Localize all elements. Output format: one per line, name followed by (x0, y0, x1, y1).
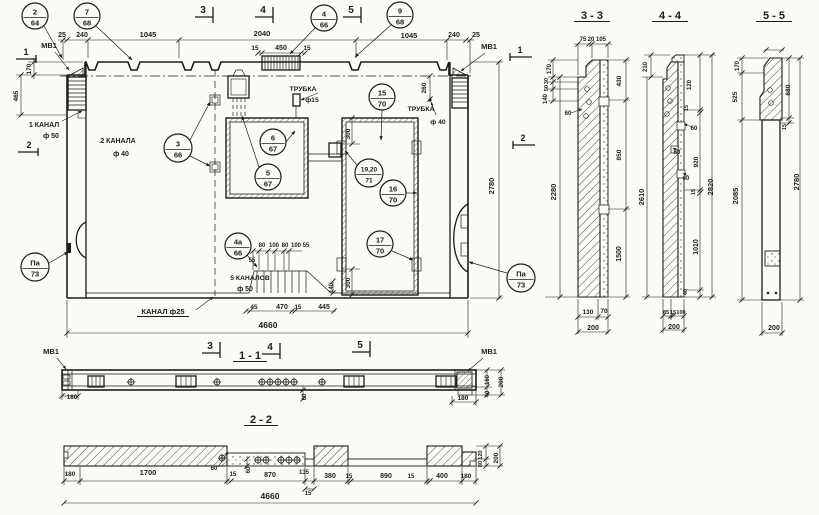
callout-sheet-number: 64 (31, 19, 40, 28)
dim-label: 30 (544, 78, 550, 84)
dim-label: 1045 (401, 31, 418, 40)
callout-position-number: 7 (85, 8, 89, 17)
dim-label: 2820 (706, 179, 715, 196)
dim-label: 105 (596, 37, 607, 43)
dim-label: 2 КАНАЛА (100, 138, 135, 145)
dim-label: 2780 (792, 174, 801, 191)
dim-label: 60 (302, 393, 308, 400)
section-4-4 (642, 52, 716, 333)
dim-label: ф 50 (237, 286, 253, 293)
dim-label: 180 (458, 395, 469, 402)
dim-label: 2040 (254, 29, 271, 38)
dim-label: 1045 (140, 30, 157, 39)
callout-sheet-number: 67 (269, 145, 277, 154)
dim-label: 15 (782, 124, 788, 130)
callout-leader (355, 25, 391, 57)
opening-2 (337, 118, 421, 295)
dim-label: 4660 (259, 320, 278, 330)
bottom-dim-4660 (64, 300, 470, 338)
dim-label: 120 (687, 79, 693, 90)
dim-label: 60 (211, 466, 218, 472)
dim-label: 200 (668, 324, 680, 331)
top-dim-line (58, 37, 474, 73)
callout-position-number: 9 (398, 7, 402, 16)
dim-label: 15 (295, 305, 302, 311)
dim-label: 400 (436, 473, 448, 480)
dim-label: 1010 (693, 239, 700, 255)
dim-label: 430 (616, 75, 623, 86)
callout-position-number: 5 (266, 169, 270, 178)
panel-shop-drawing: 264768466968366667567157019,207116701770… (0, 0, 819, 515)
callout-position-number: 16 (389, 185, 397, 194)
mb1-embed-left (70, 68, 83, 75)
callout-sheet-number: 71 (365, 178, 373, 185)
dim-label: 50 (544, 85, 550, 91)
dim-label: 5 (357, 340, 363, 351)
dim-label: МВ1 (41, 41, 57, 50)
dim-label: 80 (478, 461, 484, 467)
callout-position-number: 15 (378, 89, 386, 98)
dim-label: 15 (251, 45, 259, 52)
dim-label: КАНАЛ ф25 (141, 307, 184, 316)
dim-label: 180 (461, 473, 472, 480)
dim-label: 40 (683, 289, 689, 295)
dim-label: 920 (693, 156, 700, 167)
callout-leader (190, 102, 210, 140)
dim-label: 3 (200, 5, 206, 16)
dim-label: 15 (691, 189, 697, 195)
dim-label: 2780 (487, 178, 496, 195)
dim-label: 5 (348, 5, 354, 16)
dim-label: 1 (517, 45, 522, 55)
dim-label: 60 (674, 150, 681, 156)
dim-label: 15 (408, 474, 415, 480)
dim-label: 1 (23, 47, 28, 57)
dim-label: 75 (580, 37, 587, 43)
dim-label: ф15 (305, 97, 319, 104)
right-end-embed (452, 78, 468, 108)
dim-label: 70 (600, 308, 608, 315)
dim-label: 1 - 1 (239, 350, 261, 362)
dim-label: 25 (472, 32, 480, 39)
dim-label: 15 (670, 310, 676, 316)
dim-label: 100 (676, 310, 685, 316)
dim-label: МВ1 (481, 347, 497, 356)
dim-label: 240 (76, 32, 88, 39)
callout-position-number: 2 (33, 8, 37, 17)
callout-position-number: 17 (376, 236, 384, 245)
dim-label: ф 40 (113, 151, 129, 158)
dim-label: 200 (498, 376, 505, 387)
dim-label: 15 (305, 491, 312, 497)
dim-label: 2 (26, 140, 31, 150)
dim-label: 40 (485, 390, 491, 397)
dim-label: ф 40 (430, 119, 446, 126)
drawing-sheet: 264768466968366667567157019,207116701770… (0, 0, 819, 515)
plan-view-1-1 (57, 341, 505, 406)
dim-label: 25 (58, 32, 66, 39)
dim-label: 55 (303, 243, 310, 249)
dim-label: 200 (493, 452, 500, 463)
callout-position-number: Па (30, 259, 40, 268)
right-lifting-recess (454, 204, 468, 272)
dim-label: 130 (583, 309, 594, 316)
callout-position-number: 6 (271, 134, 275, 143)
dim-label: 4 (260, 5, 266, 16)
callout-position-number: 4а (234, 238, 243, 247)
dim-label: 180 (65, 471, 76, 478)
left-lifting-recess (76, 222, 86, 258)
dim-label: 465 (13, 90, 20, 101)
dim-label: 60 (691, 126, 698, 132)
section-5-5 (737, 47, 804, 336)
callout-sheet-number: 70 (376, 247, 384, 256)
dim-label: 450 (275, 45, 287, 52)
callout-sheet-number: 66 (234, 249, 242, 258)
dim-label: 140 (543, 93, 549, 104)
dim-label: 15 (230, 472, 237, 478)
dim-label: 15 (346, 474, 353, 480)
callout-sheet-number: 68 (396, 18, 404, 27)
callout-leader (469, 262, 507, 273)
dim-label: МВ1 (481, 42, 497, 51)
dim-label: 170 (547, 63, 553, 74)
dim-label: 160 (485, 374, 491, 385)
dim-label: 80 (259, 243, 266, 249)
callout-leader (49, 252, 68, 263)
dim-label: 890 (380, 473, 392, 480)
dim-label: 300 (345, 277, 352, 288)
dim-label: 100 (291, 243, 302, 249)
callout-position-number: 19,20 (361, 167, 378, 174)
callout-sheet-number: 70 (378, 100, 386, 109)
dim-label: 210 (643, 61, 649, 72)
callout-sheet-number: 67 (264, 180, 272, 189)
dim-label: 60 (565, 111, 572, 117)
dim-label: 240 (448, 32, 460, 39)
callout-sheet-number: 66 (320, 21, 328, 30)
dim-label: 15 (303, 45, 311, 52)
dim-label: ТРУБКА (290, 86, 317, 93)
dim-label: 2610 (637, 189, 646, 206)
dim-label: 3 (207, 341, 213, 352)
dim-label: 4 (267, 342, 273, 353)
dim-label: 5 КАНАЛОВ (230, 275, 270, 282)
plan-section-flags (202, 341, 370, 359)
dim-label: 5 - 5 (763, 10, 785, 22)
dim-label: 1500 (616, 246, 623, 262)
dim-label: 2085 (731, 188, 740, 205)
dim-label: 2280 (549, 184, 558, 201)
dim-label: 120 (478, 450, 484, 459)
callout-position-number: 3 (176, 140, 180, 149)
dim-label: 100 (269, 243, 280, 249)
dim-label: 200 (587, 325, 599, 332)
dim-label: 140 (329, 282, 335, 293)
dim-label: 470 (276, 304, 288, 311)
dim-label: 445 (318, 304, 330, 311)
dim-label: 4 - 4 (659, 10, 682, 22)
callout-position-number: Па (516, 270, 526, 279)
dim-label: 80 (282, 243, 289, 249)
dim-label: 20 (588, 37, 595, 43)
callout-sheet-number: 73 (31, 270, 39, 279)
dim-label: 525 (732, 91, 739, 102)
dim-label: 200 (768, 325, 780, 332)
dim-label: 850 (616, 149, 623, 160)
top-joint-key (262, 56, 300, 70)
dim-label: 135 (299, 470, 310, 476)
dim-label: 180 (67, 394, 78, 401)
conduit-block (228, 70, 249, 118)
callout-sheet-number: 68 (83, 19, 91, 28)
callout-sheet-number: 66 (174, 151, 182, 160)
dim-label: 2 - 2 (250, 414, 272, 426)
mb1-plan-embed (457, 372, 472, 388)
dim-label: 2 (520, 133, 525, 143)
callout-sheet-number: 70 (389, 196, 397, 205)
dim-label: 680 (785, 84, 792, 95)
dim-label: ТРУБКА (408, 106, 435, 113)
dim-label: 15 (684, 105, 690, 111)
plan-channel-symbols (127, 378, 326, 386)
plan-keyways (88, 376, 456, 387)
dim-label: 55 (249, 258, 256, 264)
callout-leader (96, 26, 132, 60)
dim-label: 4660 (261, 491, 280, 501)
left-end-embed (68, 77, 86, 118)
dim-label: ф 50 (43, 133, 59, 140)
dim-label: 45 (250, 304, 258, 311)
dim-label: 870 (264, 472, 276, 479)
dim-label: 170 (26, 63, 33, 74)
callout-leader (190, 156, 210, 166)
dim-label: 170 (735, 60, 741, 71)
dim-label: 85 (663, 310, 669, 316)
dim-label: 380 (324, 473, 336, 480)
dim-label: 3 - 3 (581, 10, 603, 22)
dim-label: 300 (345, 128, 352, 139)
dim-label: 1 КАНАЛ (29, 122, 59, 129)
dim-label: 1700 (140, 468, 157, 477)
dim-label: 260 (421, 82, 428, 93)
dim-label: 60 (683, 176, 690, 182)
dim-label: 60 (246, 466, 252, 473)
dim-label: МВ1 (43, 347, 59, 356)
callout-sheet-number: 73 (517, 281, 525, 290)
